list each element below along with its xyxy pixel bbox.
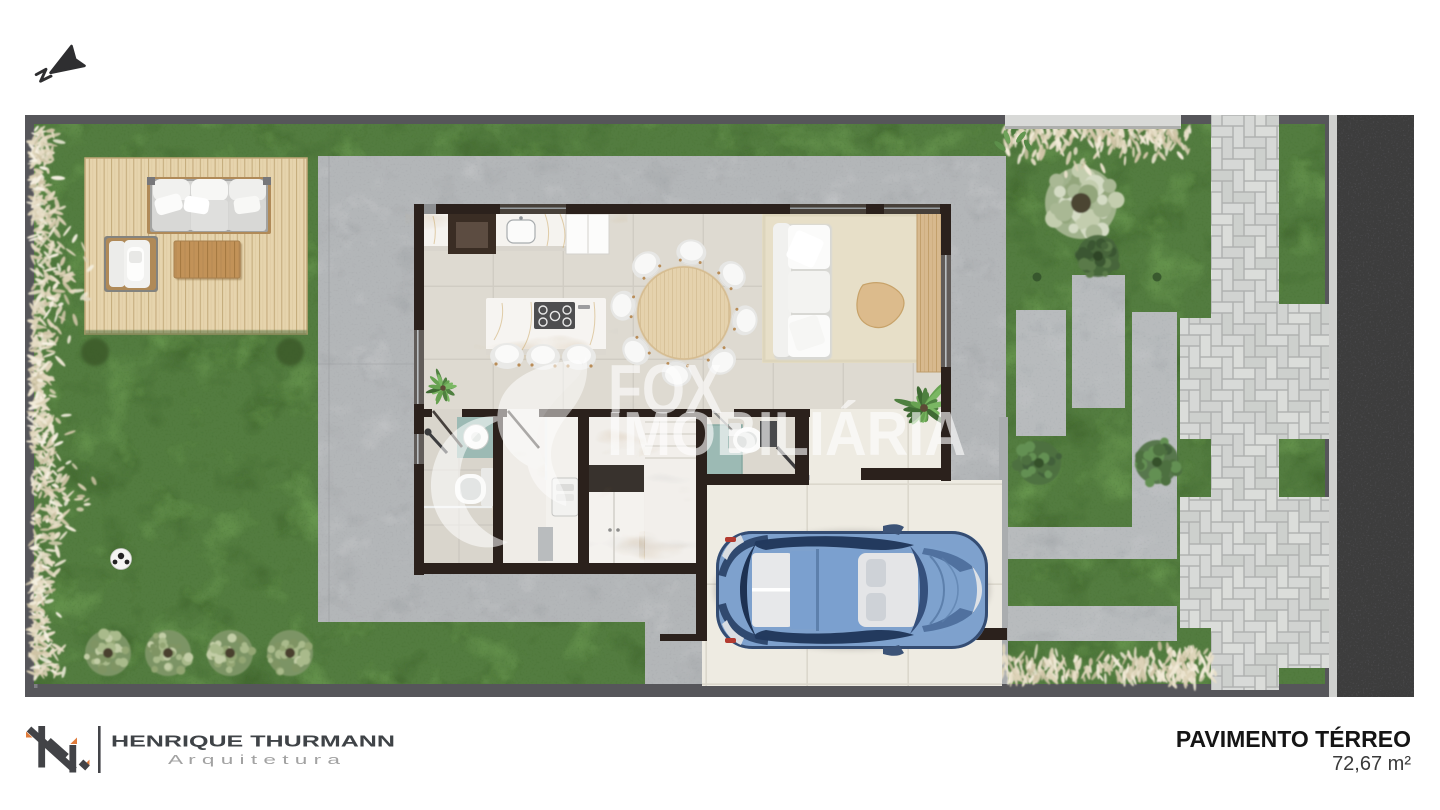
svg-text:A r q u i t e t u r a: A r q u i t e t u r a — [168, 752, 341, 767]
svg-text:72,67 m²: 72,67 m² — [1332, 753, 1411, 775]
svg-text:HENRIQUE THURMANN: HENRIQUE THURMANN — [111, 734, 395, 751]
svg-text:PAVIMENTO TÉRREO: PAVIMENTO TÉRREO — [1176, 725, 1411, 752]
svg-text:IMOBILIÁRIA: IMOBILIÁRIA — [607, 400, 966, 469]
